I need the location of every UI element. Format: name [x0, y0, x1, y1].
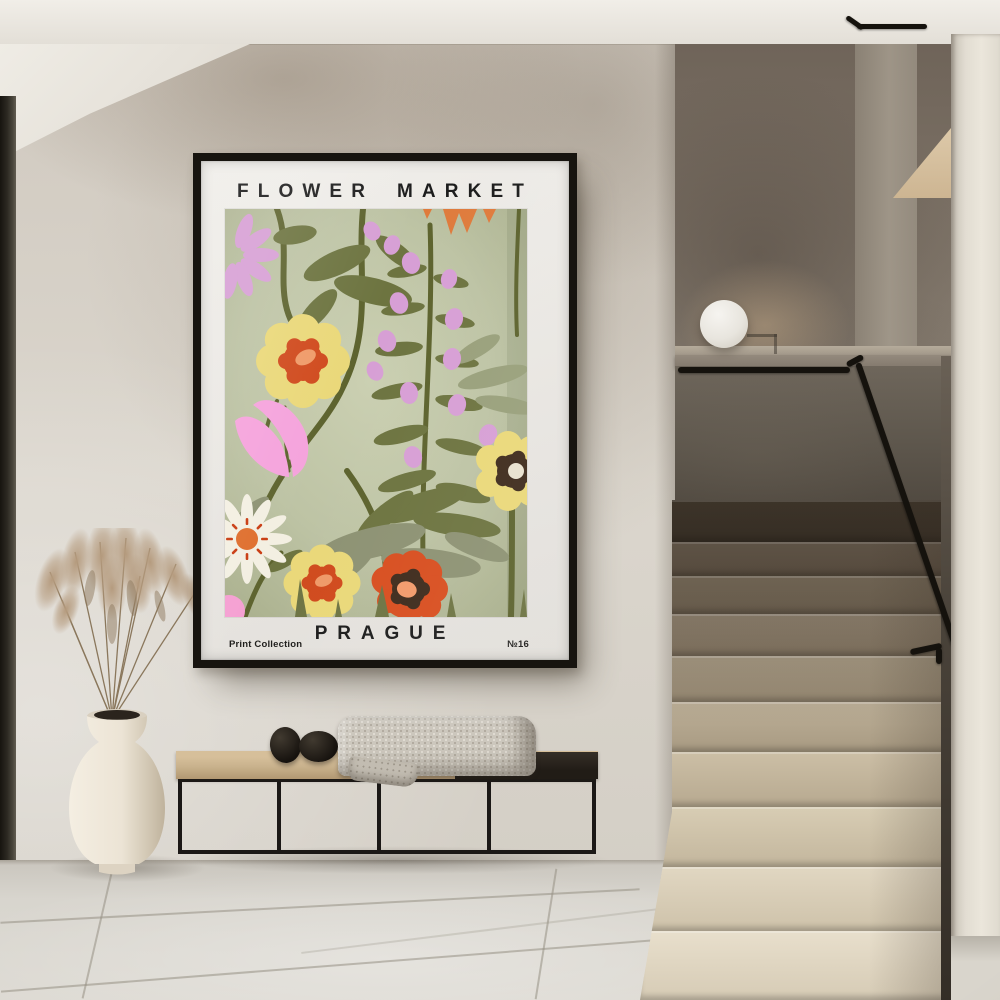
handrail-horizontal	[678, 367, 850, 373]
stair-step	[640, 867, 958, 931]
stair-step	[640, 807, 958, 867]
side-table-leg	[774, 334, 777, 354]
glass-balustrade	[675, 366, 951, 512]
handrail-bracket-stub	[936, 648, 942, 664]
hallway-scene: FLOWER MARKET	[0, 0, 1000, 1000]
stone-decor	[299, 731, 338, 762]
stair-step	[640, 752, 958, 807]
bench	[178, 779, 596, 854]
sphere-lamp	[700, 300, 748, 348]
side-table	[747, 334, 777, 337]
bench-post	[277, 782, 281, 850]
stair-step	[640, 656, 958, 702]
stair-step	[640, 576, 958, 614]
bench-post	[377, 782, 381, 850]
right-pillar	[951, 34, 1000, 1000]
stair-step	[640, 542, 958, 576]
ledge-top	[675, 346, 951, 355]
framed-poster: FLOWER MARKET	[193, 153, 577, 668]
floor-vase	[55, 700, 179, 878]
bench-post	[487, 782, 491, 850]
stair-step	[640, 702, 958, 752]
poster-caption-left: Print Collection	[229, 639, 302, 650]
door-frame	[0, 96, 16, 862]
right-pillar-base	[951, 936, 1000, 1000]
stairwell-light-panel	[855, 44, 917, 364]
poster-title: FLOWER MARKET	[201, 181, 569, 203]
staircase	[640, 500, 958, 1000]
handrail-upper	[857, 24, 927, 29]
poster-captions: Print Collection №16	[229, 639, 529, 650]
flower-artwork	[225, 209, 527, 617]
stair-step	[640, 931, 958, 1000]
poster-caption-right: №16	[507, 639, 529, 650]
